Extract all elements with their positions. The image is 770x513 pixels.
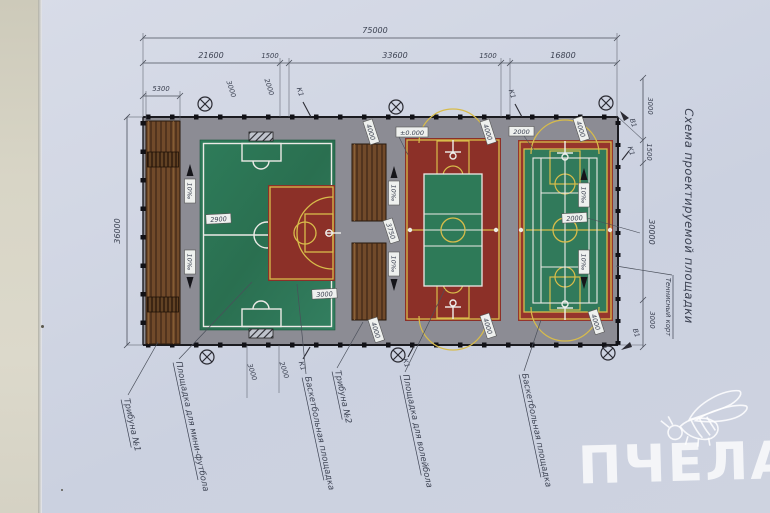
svg-text:2000: 2000 xyxy=(566,214,583,223)
svg-text:Баскетбольная площадка: Баскетбольная площадка xyxy=(302,376,336,492)
tribune-2-lower xyxy=(352,243,386,320)
svg-text:10‰: 10‰ xyxy=(580,186,588,203)
svg-text:Площадка для волейбола: Площадка для волейбола xyxy=(400,374,434,489)
spot-elevation-2000: 2000 xyxy=(562,212,587,223)
spot-3000-value: 3000 xyxy=(316,290,333,299)
dim-right-fence: 1500 xyxy=(645,143,653,160)
callout-volleyball: Площадка для волейбола xyxy=(400,374,434,489)
basketball-half-court xyxy=(268,185,341,281)
dim-top-2000: 2000 xyxy=(263,78,276,97)
callout-tribune1: Трибуна №1 xyxy=(121,398,142,453)
k1-flag: К1 xyxy=(295,86,305,97)
v1-flag: В1 xyxy=(628,117,638,128)
svg-text:Трибуна №2: Трибуна №2 xyxy=(332,370,353,425)
svg-text:10‰: 10‰ xyxy=(390,184,398,201)
tribune-2-upper xyxy=(352,144,386,221)
goal-top xyxy=(249,132,273,141)
goal-bottom xyxy=(249,329,273,338)
dim-overall: 75000 xyxy=(362,26,387,35)
callout-basketball-right: Баскетбольная площадка xyxy=(519,373,553,489)
basketball-tennis-court: 10‰ 10‰ 2000 xyxy=(518,120,640,341)
spot-elevation-2900: 2900 xyxy=(206,213,231,224)
tribune-1 xyxy=(146,121,180,344)
slope-value: 10‰ xyxy=(186,182,194,199)
dim-tribune-w: 5300 xyxy=(152,85,169,93)
watermark-text: ПЧЕЛА xyxy=(577,431,770,496)
spot-2900-value: 2900 xyxy=(210,215,227,224)
photo-of-site-plan: 2900 3000 10‰ 10‰ xyxy=(0,0,770,513)
callout-mini-football: Площадка для мини-футбола xyxy=(173,361,210,493)
dim-bottom-3000: 3000 xyxy=(246,363,259,382)
dim-gap-right: 1500 xyxy=(479,52,496,60)
svg-text:Трибуна №1: Трибуна №1 xyxy=(121,398,142,453)
tribune1-stairs-top xyxy=(148,152,179,167)
dim-right-top: 3000 xyxy=(646,97,654,114)
dim-right-bottom: 3000 xyxy=(648,311,656,328)
k1-flag: К1 xyxy=(507,88,517,99)
callout-basketball-left: Баскетбольная площадка xyxy=(302,376,336,492)
dim-gap-left: 1500 xyxy=(261,52,278,60)
spot-elevation-3000: 3000 xyxy=(312,288,337,299)
v1-flag: В1 xyxy=(631,327,641,338)
dim-tennis: 16800 xyxy=(550,51,575,60)
k1-flag: К1 xyxy=(626,145,636,156)
tribune1-stairs-bottom xyxy=(148,297,179,312)
dim-right-court: 30000 xyxy=(647,219,656,244)
svg-text:Теннисный корт: Теннисный корт xyxy=(664,278,672,337)
svg-text:10‰: 10‰ xyxy=(390,255,398,272)
callout-tennis: Теннисный корт xyxy=(664,275,673,339)
dim-top-3000: 3000 xyxy=(225,80,238,99)
slope-value: 10‰ xyxy=(186,253,194,270)
svg-text:±0.000: ±0.000 xyxy=(400,129,424,137)
dim-bottom-2000: 2000 xyxy=(278,361,291,380)
dim-height-left: 36000 xyxy=(113,218,122,243)
dim-middle: 33600 xyxy=(382,51,407,60)
svg-text:2000: 2000 xyxy=(513,128,530,136)
callout-tribune2: Трибуна №2 xyxy=(332,370,353,425)
svg-text:Площадка для мини-футбола: Площадка для мини-футбола xyxy=(173,361,210,493)
svg-text:Баскетбольная площадка: Баскетбольная площадка xyxy=(519,373,553,489)
svg-text:10‰: 10‰ xyxy=(580,253,588,270)
dim-football: 21600 xyxy=(198,51,223,60)
drawing-title: Схема проектируемой площадки xyxy=(682,108,696,324)
